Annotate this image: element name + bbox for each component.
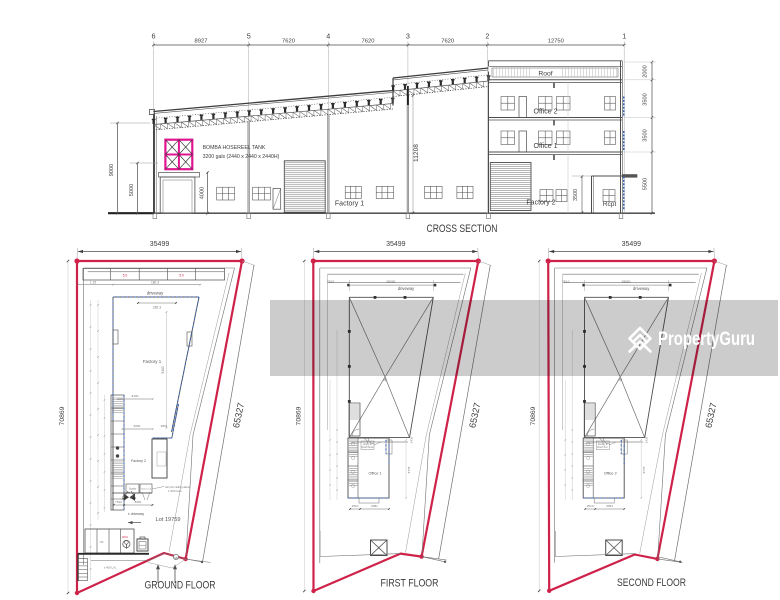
svg-text:6: 6 [152,32,156,41]
svg-text:3200 gals (2440 x 2440 x 2440H: 3200 gals (2440 x 2440 x 2440H) [203,154,280,160]
svg-text:7620: 7620 [362,39,375,45]
svg-text:1.15: 1.15 [90,281,96,285]
svg-text:1: 1 [622,32,626,41]
svg-text:5.0: 5.0 [179,274,184,278]
svg-text:± driveway: ± driveway [128,512,144,516]
svg-text:GROUND FLOOR: GROUND FLOOR [145,580,216,592]
svg-text:70869: 70869 [295,406,302,425]
svg-text:Roof: Roof [538,71,552,78]
svg-text:7510: 7510 [115,500,122,504]
svg-text:Roof Deck: Roof Deck [362,446,374,449]
svg-text:3500: 3500 [573,189,579,201]
svg-text:Supply: Supply [129,488,137,491]
svg-text:28081: 28081 [386,280,396,284]
svg-text:Gate Lock: Gate Lock [141,488,152,491]
svg-text:GB: GB [174,557,178,560]
svg-text:282.3: 282.3 [153,306,161,310]
svg-text:GB: GB [100,540,104,544]
svg-text:5500: 5500 [643,178,649,190]
svg-text:2: 2 [485,32,489,41]
svg-text:PropertyGuru: PropertyGuru [658,328,755,350]
svg-text:11208: 11208 [413,144,420,162]
svg-text:driveway: driveway [147,290,164,295]
svg-text:3500: 3500 [643,129,649,141]
svg-text:35499: 35499 [622,241,642,248]
svg-text:Factory 1: Factory 1 [335,201,364,208]
svg-text:FIRST FLOOR: FIRST FLOOR [381,578,439,590]
svg-text:70869: 70869 [59,406,66,425]
svg-text:Factory 2: Factory 2 [526,199,555,206]
svg-text:5000: 5000 [129,184,135,196]
svg-text:6081: 6081 [606,504,613,508]
svg-text:Factory 1: Factory 1 [143,359,162,364]
svg-text:5.0: 5.0 [123,274,128,278]
svg-text:Office 2: Office 2 [534,109,558,116]
svg-text:8927: 8927 [195,39,208,45]
svg-text:8778: 8778 [642,466,646,473]
svg-text:Lot 19759: Lot 19759 [156,517,181,523]
svg-text:3801: 3801 [161,424,168,428]
svg-text:Roof Terr.: Roof Terr. [597,446,608,449]
svg-text:8778: 8778 [407,466,411,473]
svg-text:8100: 8100 [132,394,139,398]
svg-text:6081: 6081 [371,504,378,508]
svg-text:8081: 8081 [135,500,142,504]
svg-text:CROSS SECTION: CROSS SECTION [427,223,498,235]
svg-text:2000: 2000 [643,65,649,77]
svg-text:65327: 65327 [231,402,246,429]
svg-text:9000: 9000 [109,164,115,176]
svg-text:driveway: driveway [633,286,650,291]
svg-text:7510: 7510 [327,280,335,284]
svg-text:28081: 28081 [621,280,631,284]
svg-text:driveway: driveway [398,286,415,291]
svg-text:± 600 lock: ± 600 lock [168,489,182,493]
svg-text:4: 4 [326,32,330,41]
svg-text:7620: 7620 [282,39,295,45]
svg-text:5: 5 [247,32,251,41]
svg-text:3500: 3500 [643,93,649,105]
svg-text:8100: 8100 [161,366,165,373]
svg-text:180.3: 180.3 [151,281,159,285]
svg-text:7620: 7620 [441,39,454,45]
svg-text:2436: 2436 [645,436,649,443]
svg-text:Rcpt: Rcpt [603,201,617,208]
svg-text:12750: 12750 [548,39,564,45]
svg-text:Office 1: Office 1 [368,472,381,476]
svg-text:± 400 LVL: ± 400 LVL [104,566,117,570]
svg-text:65327: 65327 [703,402,718,429]
svg-text:4000: 4000 [200,187,206,199]
svg-text:2510: 2510 [587,504,594,508]
svg-text:2510: 2510 [352,504,359,508]
svg-text:OKU: OKU [122,535,128,539]
svg-text:65327: 65327 [467,402,482,429]
svg-text:35499: 35499 [386,241,406,248]
svg-text:BOMBA HOSEREEL TANK: BOMBA HOSEREEL TANK [203,145,266,151]
svg-text:Factory 2: Factory 2 [131,459,146,463]
svg-text:SECOND FLOOR: SECOND FLOOR [617,577,686,589]
svg-text:70869: 70869 [530,406,537,425]
svg-text:35499: 35499 [150,241,170,248]
svg-text:6000: 6000 [134,424,141,428]
svg-text:2436: 2436 [410,436,414,443]
svg-text:Office 1: Office 1 [534,143,558,150]
svg-text:7510: 7510 [562,280,570,284]
svg-text:up: up [383,378,387,382]
svg-text:Office 2: Office 2 [604,472,617,476]
svg-text:up: up [618,378,622,382]
svg-text:3: 3 [406,32,410,41]
